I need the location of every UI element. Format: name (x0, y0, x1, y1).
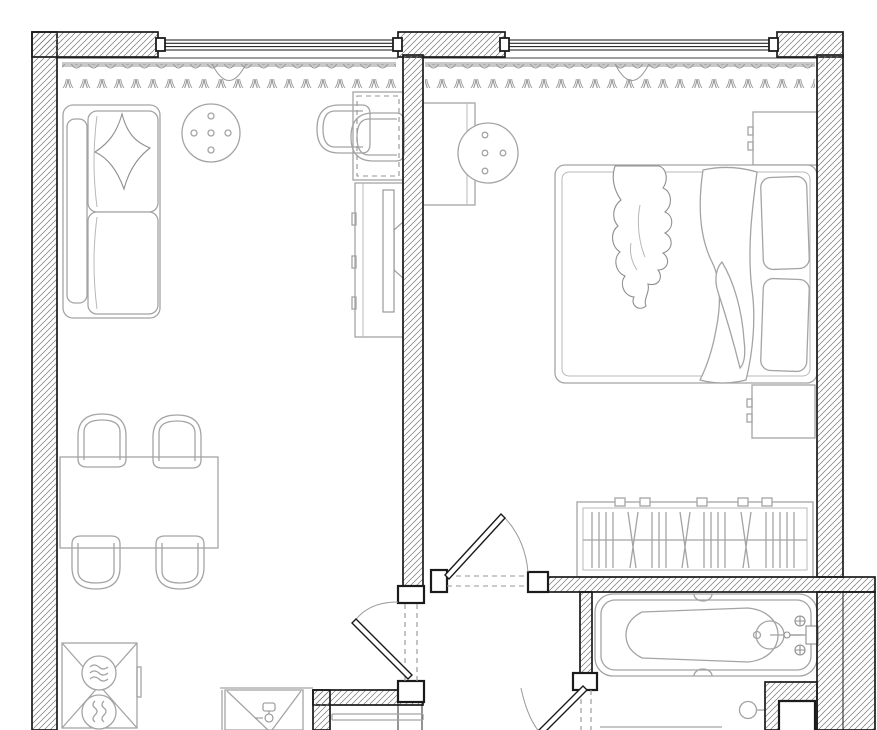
dining-table (60, 457, 218, 548)
kitchen-doorway-post-bottom (398, 681, 424, 702)
living-bedroom-partition (403, 55, 423, 586)
bedroom-door (445, 514, 528, 586)
top-left-corner-wall (32, 32, 158, 57)
kitchen-l-wall-vertical (313, 690, 330, 730)
kitchen-door-leaf (352, 619, 412, 679)
kitchen-doorway-post-top (398, 586, 424, 603)
stove-unit (62, 643, 141, 729)
towel-ring-icon (740, 702, 767, 719)
bathroom-left-wall (580, 592, 592, 675)
bedroom-bottom-wall (530, 577, 875, 592)
dining-chair-2 (153, 415, 201, 468)
tv (383, 190, 394, 312)
wardrobe (577, 498, 813, 577)
dining-chair-4 (156, 536, 204, 589)
dining-chair-3 (72, 536, 120, 589)
right-wall-lower (817, 592, 875, 730)
bedroom-curtain (425, 62, 815, 88)
sofa (63, 105, 160, 318)
coffee-table (182, 104, 240, 162)
right-wall-upper (817, 55, 843, 577)
bathroom-door (521, 686, 591, 730)
top-middle-pier (398, 32, 505, 57)
duct-niche (779, 701, 815, 730)
armchair-2 (351, 113, 404, 161)
left-wall (32, 32, 57, 730)
overhead-cabinet-dashed (357, 96, 399, 176)
double-bed (555, 165, 817, 383)
stool (458, 123, 518, 183)
bathroom-door-leaf (538, 686, 587, 730)
floor-plan-svg (0, 0, 877, 730)
pillow-1 (760, 176, 809, 270)
desk-with-armchairs (317, 92, 404, 180)
faucet-icon (255, 703, 275, 722)
top-right-corner-wall (777, 32, 843, 57)
nightstand-bottom (747, 385, 815, 438)
room-living-kitchen (60, 92, 404, 730)
baseboard-lines (332, 714, 423, 720)
living-room-curtain (62, 62, 396, 88)
room-bedroom (423, 103, 817, 577)
curtains (62, 62, 815, 88)
bedroom-door-leaf (445, 514, 505, 579)
pillow-2 (760, 278, 809, 372)
floor-plan-page (0, 0, 877, 730)
hall-wall-edge-lines (398, 703, 422, 730)
dining-chair-1 (78, 414, 126, 467)
kitchen-sink-cabinet (220, 688, 313, 730)
nightstand-top (748, 112, 817, 165)
bedroom-door-post-right (528, 572, 548, 592)
dining-set (60, 414, 218, 589)
kitchen-door (352, 602, 417, 681)
bathtub (595, 594, 818, 676)
tv-console (352, 183, 403, 337)
living-room-window (156, 38, 402, 51)
bedroom-door-post-left (431, 570, 447, 592)
tv-bracket (394, 222, 403, 278)
armchair-1 (317, 105, 370, 153)
bedroom-window (500, 38, 778, 51)
